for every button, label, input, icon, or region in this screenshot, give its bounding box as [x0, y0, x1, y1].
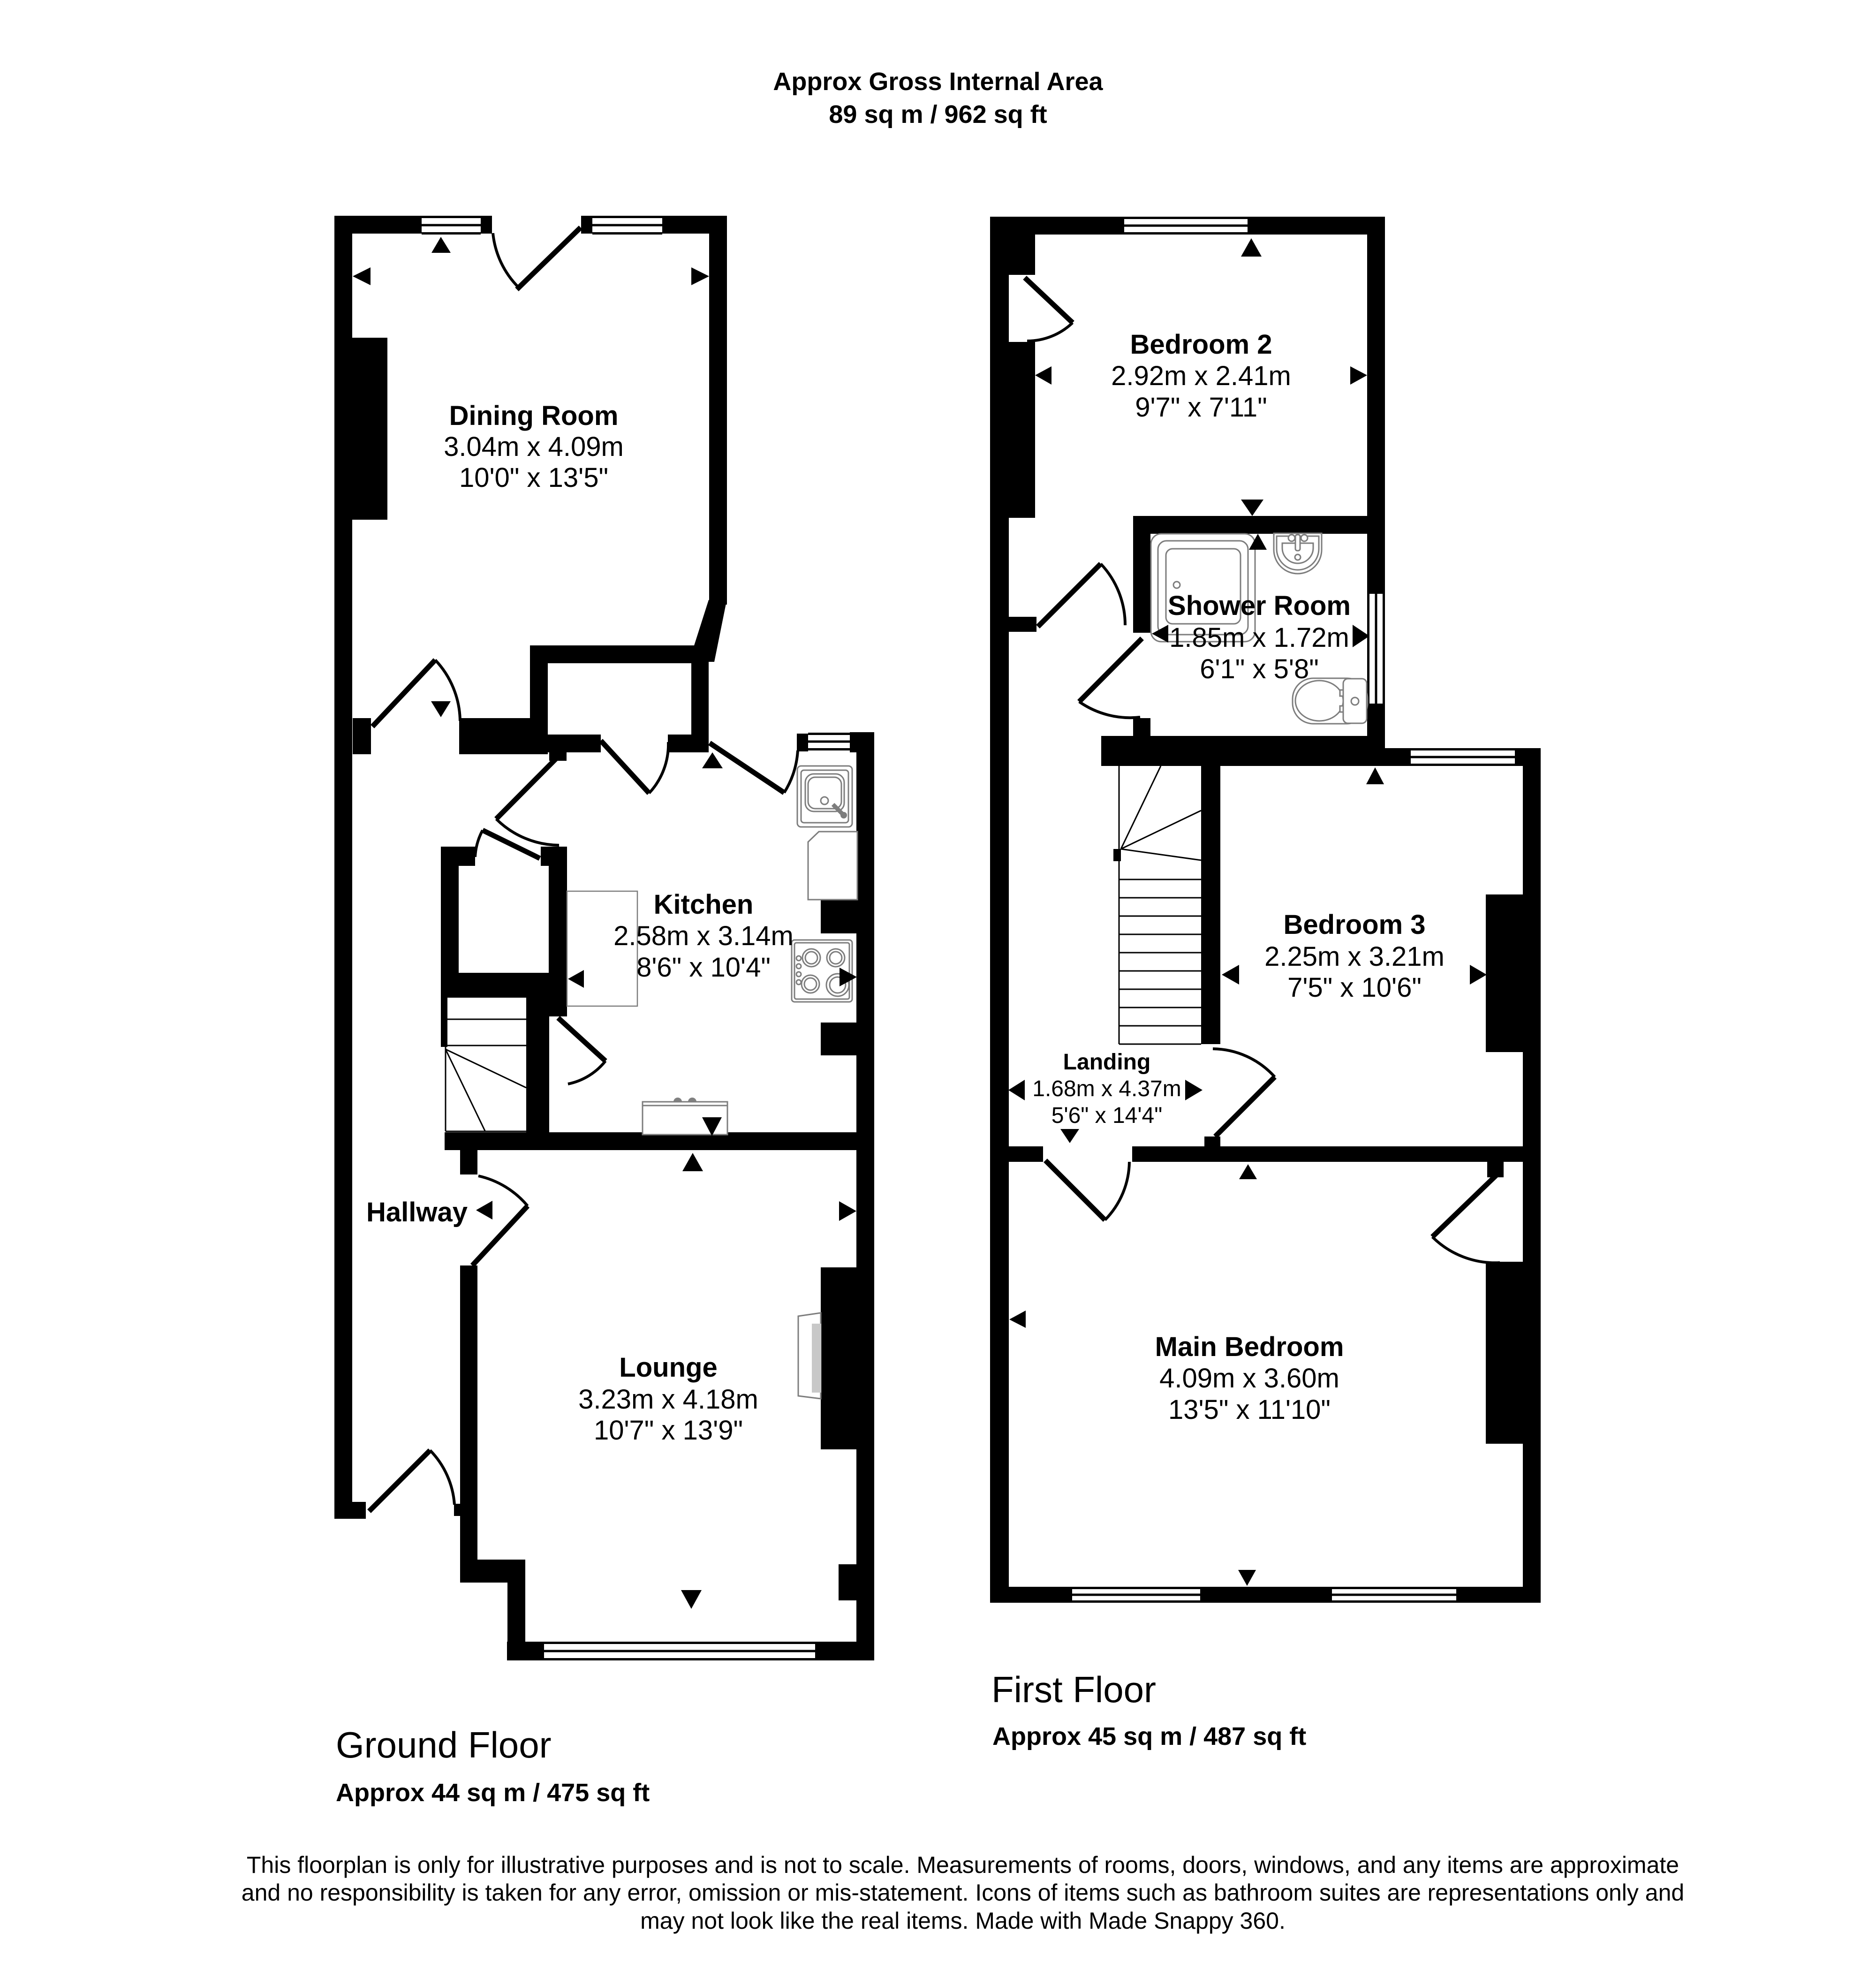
svg-text:First Floor: First Floor: [991, 1669, 1156, 1710]
svg-text:Lounge: Lounge: [619, 1352, 717, 1383]
svg-text:10'7" x 13'9": 10'7" x 13'9": [594, 1415, 743, 1446]
svg-text:Main Bedroom: Main Bedroom: [1155, 1332, 1344, 1362]
svg-text:Approx 44 sq m / 475 sq ft: Approx 44 sq m / 475 sq ft: [336, 1779, 650, 1807]
svg-text:1.85m x 1.72m: 1.85m x 1.72m: [1169, 622, 1349, 653]
svg-text:8'6" x 10'4": 8'6" x 10'4": [636, 952, 771, 983]
svg-text:13'5" x 11'10": 13'5" x 11'10": [1168, 1394, 1331, 1425]
svg-text:Approx 45 sq m / 487 sq ft: Approx 45 sq m / 487 sq ft: [992, 1722, 1306, 1750]
svg-text:Landing: Landing: [1063, 1050, 1151, 1075]
svg-text:This floorplan is only for ill: This floorplan is only for illustrative …: [247, 1852, 1679, 1878]
svg-text:1.68m x 4.37m: 1.68m x 4.37m: [1032, 1076, 1181, 1101]
svg-text:2.25m x 3.21m: 2.25m x 3.21m: [1264, 941, 1445, 972]
svg-text:Ground Floor: Ground Floor: [336, 1724, 552, 1765]
svg-text:89 sq m / 962 sq ft: 89 sq m / 962 sq ft: [829, 100, 1047, 129]
svg-text:2.92m x 2.41m: 2.92m x 2.41m: [1111, 361, 1291, 391]
svg-text:Approx Gross Internal Area: Approx Gross Internal Area: [773, 68, 1103, 96]
svg-text:3.23m x 4.18m: 3.23m x 4.18m: [578, 1384, 758, 1415]
svg-text:Kitchen: Kitchen: [654, 889, 754, 920]
svg-text:may not look like the real ite: may not look like the real items. Made w…: [640, 1908, 1286, 1934]
svg-text:Bedroom 2: Bedroom 2: [1130, 329, 1272, 360]
svg-text:Dining Room: Dining Room: [449, 401, 619, 431]
svg-text:Shower Room: Shower Room: [1168, 591, 1351, 621]
svg-text:5'6" x 14'4": 5'6" x 14'4": [1051, 1103, 1163, 1128]
svg-text:9'7" x 7'11": 9'7" x 7'11": [1135, 392, 1267, 423]
svg-text:6'1" x 5'8": 6'1" x 5'8": [1200, 654, 1319, 684]
svg-text:3.04m x 4.09m: 3.04m x 4.09m: [444, 432, 624, 462]
svg-text:7'5" x 10'6": 7'5" x 10'6": [1287, 972, 1422, 1003]
svg-text:Hallway: Hallway: [366, 1197, 468, 1227]
svg-text:Bedroom 3: Bedroom 3: [1284, 909, 1426, 940]
svg-text:and no responsibility is taken: and no responsibility is taken for any e…: [242, 1879, 1684, 1906]
svg-text:4.09m x 3.60m: 4.09m x 3.60m: [1159, 1363, 1339, 1394]
svg-text:10'0" x 13'5": 10'0" x 13'5": [459, 462, 608, 493]
svg-text:2.58m x 3.14m: 2.58m x 3.14m: [613, 921, 794, 951]
